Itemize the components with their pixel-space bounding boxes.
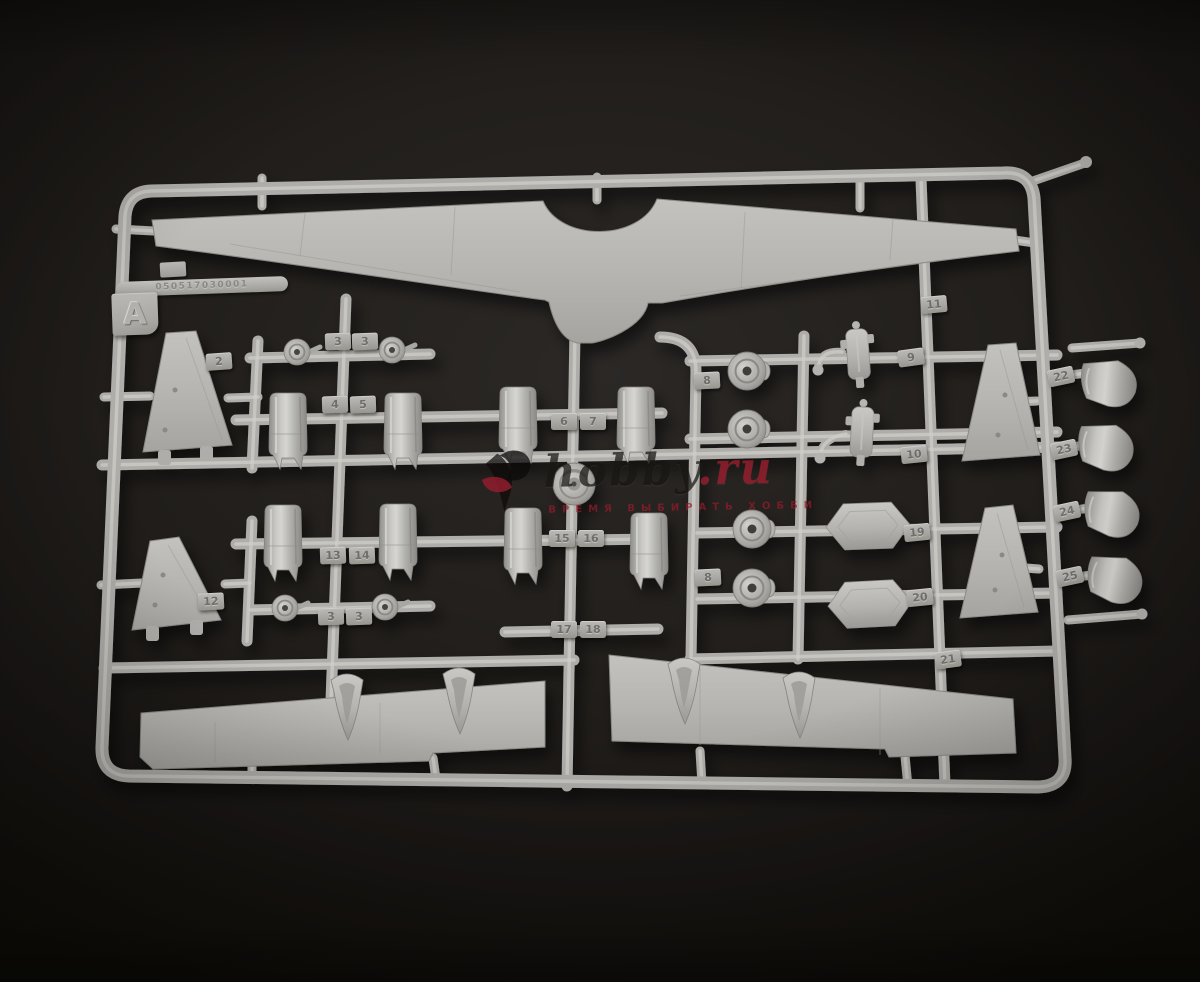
wheel-part (372, 594, 408, 620)
radome-part (1080, 486, 1143, 541)
tail-fin-part (132, 537, 221, 641)
mold-number: 050517030001 (155, 279, 248, 292)
photo-stage: 050517030001 A 2334567889101112131415161… (0, 0, 1200, 982)
tail-fin-part (143, 331, 232, 465)
frame-gate-tab (160, 261, 187, 277)
shop-tagline: ВРЕМЯ ВЫБИРАТЬ ХОББИ (548, 500, 818, 516)
engine-nacelle-part (269, 393, 307, 469)
shop-name: hobby.ru (543, 443, 774, 498)
radome-part (1082, 551, 1146, 608)
radome-part (1075, 420, 1137, 474)
shop-logo-icon (477, 449, 540, 514)
hex-plate-part (825, 502, 911, 551)
rod-end (1137, 609, 1148, 620)
shop-name-text: hobby (543, 444, 697, 498)
sprue-letter: A (123, 296, 147, 332)
engine-nacelle-part (264, 505, 302, 581)
frame-stub-end (1080, 156, 1092, 168)
rod-end (1135, 338, 1146, 349)
wheel-part (272, 595, 308, 621)
sprue-letter-tab: A (111, 292, 158, 336)
shop-domain-text: .ru (697, 443, 774, 495)
engine-nacelle-part (379, 504, 417, 580)
tail-fin-part (960, 505, 1038, 618)
radome-part (1079, 358, 1139, 409)
tube-end (813, 365, 824, 376)
upper-wing-part (152, 199, 1019, 343)
hex-plate-part (827, 579, 913, 629)
shop-watermark: hobby.ru ВРЕМЯ ВЫБИРАТЬ ХОББИ (477, 440, 819, 536)
engine-nacelle-part (384, 393, 422, 469)
